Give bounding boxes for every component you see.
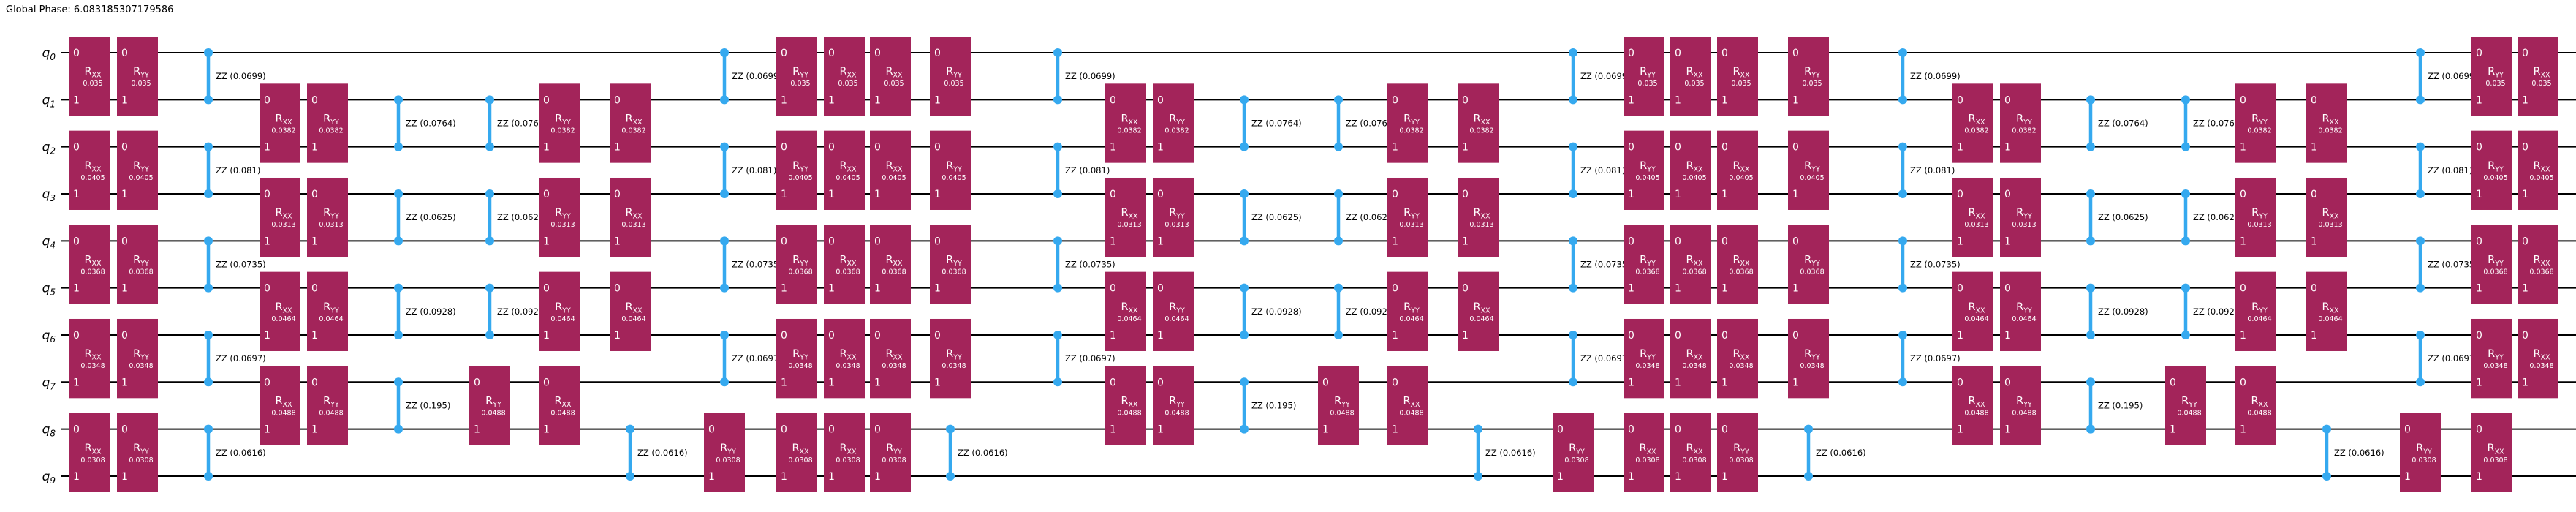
gate-input-1: 1: [781, 471, 787, 483]
gate-input-0: 0: [264, 377, 270, 388]
zz-gate-q6-q7: ZZ (0.0697): [204, 331, 266, 386]
zz-gate-q2-q3: ZZ (0.081): [1898, 143, 1955, 198]
gate-input-1: 1: [934, 189, 941, 200]
zz-gate-q3-q4: ZZ (0.0625): [2086, 189, 2148, 245]
gate-angle-label: 0.0368: [1682, 268, 1706, 276]
gate-input-1: 1: [73, 471, 80, 483]
gate-input-0: 0: [543, 377, 550, 388]
gate-angle-label: 0.0368: [80, 268, 105, 276]
ryy-gate-q8-q9: 01RYY0.0308: [870, 413, 911, 492]
zz-control-dot: [1569, 331, 1577, 339]
gate-angle-label: 0.035: [131, 80, 151, 88]
zz-target-dot: [1053, 95, 1062, 104]
zz-target-dot: [720, 95, 729, 104]
zz-target-dot: [1240, 425, 1249, 434]
zz-angle-label: ZZ (0.0697): [2428, 353, 2478, 364]
zz-control-dot: [1569, 143, 1577, 151]
gate-input-0: 0: [2311, 189, 2317, 200]
zz-angle-label: ZZ (0.0699): [2428, 71, 2478, 81]
gate-input-0: 0: [1792, 48, 1799, 59]
rxx-gate-q6-q7: 01RXX0.0348: [1717, 319, 1758, 398]
zz-gate-q3-q4: ZZ (0.0625): [394, 189, 456, 245]
gate-input-0: 0: [614, 189, 621, 200]
gate-input-0: 0: [543, 94, 550, 106]
rxx-gate-q7-q8: 01RXX0.0488: [539, 366, 580, 445]
gate-input-0: 0: [2522, 142, 2528, 154]
zz-angle-label: ZZ (0.0699): [1580, 71, 1631, 81]
gate-angle-label: 0.0382: [1469, 127, 1493, 135]
gate-input-1: 1: [1675, 377, 1681, 388]
qubit-label-q5: q5: [42, 282, 56, 298]
gate-input-0: 0: [1721, 48, 1728, 59]
gate-angle-label: 0.035: [884, 80, 904, 88]
gate-input-0: 0: [1392, 377, 1398, 388]
zz-target-dot: [1898, 284, 1907, 293]
zz-angle-label: ZZ (0.195): [406, 400, 450, 410]
gate-input-0: 0: [2476, 236, 2482, 247]
zz-gate-q8-q9: ZZ (0.0616): [2322, 425, 2384, 481]
gate-angle-label: 0.0348: [2483, 362, 2507, 370]
zz-control-dot: [204, 331, 213, 339]
zz-target-dot: [720, 377, 729, 386]
gate-input-0: 0: [934, 236, 941, 247]
ryy-gate-q6-q7: 01RYY0.0348: [2471, 319, 2512, 398]
zz-target-dot: [2181, 331, 2190, 339]
zz-angle-label: ZZ (0.0616): [216, 448, 266, 458]
gate-input-1: 1: [311, 330, 318, 342]
ryy-gate-q0-q1: 01RYY0.035: [1788, 37, 1829, 116]
gate-input-1: 1: [1392, 142, 1398, 154]
zz-gate-q5-q6: ZZ (0.0928): [394, 284, 456, 339]
rxx-gate-q3-q4: 01RXX0.0313: [610, 178, 651, 257]
zz-angle-label: ZZ (0.0764): [406, 118, 456, 128]
gate-input-0: 0: [2004, 189, 2011, 200]
zz-target-dot: [204, 284, 213, 293]
rxx-gate-q1-q2: 01RXX0.0382: [260, 83, 300, 162]
zz-gate-q8-q9: ZZ (0.0616): [946, 425, 1008, 481]
qubit-label-q1: q1: [42, 93, 56, 109]
gate-angle-label: 0.0308: [1564, 456, 1588, 464]
gate-input-0: 0: [2476, 142, 2482, 154]
gate-input-0: 0: [2522, 48, 2528, 59]
zz-angle-label: ZZ (0.081): [732, 165, 776, 176]
gate-input-1: 1: [543, 330, 550, 342]
gate-input-0: 0: [2240, 283, 2246, 295]
ryy-gate-q2-q3: 01RYY0.0405: [1624, 131, 1664, 210]
gate-angle-label: 0.0382: [621, 127, 645, 135]
gate-angle-label: 0.0382: [319, 127, 343, 135]
gate-angle-label: 0.0405: [942, 174, 966, 182]
gate-input-0: 0: [2311, 283, 2317, 295]
qubit-label-q6: q6: [42, 328, 56, 345]
gate-input-1: 1: [781, 377, 787, 388]
zz-gate-q6-q7: ZZ (0.0697): [1898, 331, 1961, 386]
gate-input-0: 0: [2170, 377, 2176, 388]
gate-input-1: 1: [264, 142, 270, 154]
gate-input-0: 0: [2240, 377, 2246, 388]
zz-target-dot: [1240, 331, 1249, 339]
gate-input-0: 0: [1628, 142, 1634, 154]
zz-gate-q0-q1: ZZ (0.0699): [1898, 48, 1961, 104]
gate-input-0: 0: [874, 424, 881, 436]
rxx-gate-q1-q2: 01RXX0.0382: [1458, 83, 1499, 162]
gate-angle-label: 0.0488: [2177, 409, 2201, 417]
gate-input-1: 1: [264, 424, 270, 436]
zz-angle-label: ZZ (0.081): [1065, 165, 1110, 176]
ryy-gate-q6-q7: 01RYY0.0348: [117, 319, 158, 398]
gate-angle-label: 0.0405: [882, 174, 906, 182]
rxx-gate-q0-q1: 01RXX0.035: [870, 37, 911, 116]
gate-angle-label: 0.0313: [1117, 221, 1141, 229]
gate-input-1: 1: [73, 283, 80, 295]
ryy-gate-q1-q2: 01RYY0.0382: [1153, 83, 1194, 162]
zz-target-dot: [946, 472, 955, 481]
rxx-gate-q5-q6: 01RXX0.0464: [610, 272, 651, 351]
gate-angle-label: 0.0405: [1682, 174, 1706, 182]
gate-input-1: 1: [73, 377, 80, 388]
gate-angle-label: 0.035: [838, 80, 857, 88]
gate-input-0: 0: [934, 330, 941, 342]
zz-target-dot: [485, 143, 494, 151]
zz-target-dot: [1240, 236, 1249, 245]
zz-angle-label: ZZ (0.0625): [1251, 212, 1302, 222]
rxx-gate-q2-q3: 01RXX0.0405: [69, 131, 110, 210]
zz-gate-q7-q8: ZZ (0.195): [2086, 377, 2143, 433]
gate-input-0: 0: [543, 189, 550, 200]
zz-control-dot: [720, 48, 729, 57]
qubit-label-q9: q9: [42, 470, 56, 486]
rxx-gate-q1-q2: 01RXX0.0382: [610, 83, 651, 162]
zz-angle-label: ZZ (0.195): [2098, 400, 2143, 410]
gate-input-1: 1: [2476, 94, 2482, 106]
zz-target-dot: [1053, 189, 1062, 198]
rxx-gate-q0-q1: 01RXX0.035: [69, 37, 110, 116]
gate-input-0: 0: [934, 48, 941, 59]
gate-input-0: 0: [121, 48, 128, 59]
rxx-gate-q5-q6: 01RXX0.0464: [2306, 272, 2347, 351]
ryy-gate-q0-q1: 01RYY0.035: [117, 37, 158, 116]
ryy-gate-q4-q5: 01RYY0.0368: [776, 225, 817, 304]
gate-input-0: 0: [1792, 142, 1799, 154]
gate-input-0: 0: [2004, 377, 2011, 388]
gate-input-1: 1: [874, 283, 881, 295]
zz-gate-q5-q6: ZZ (0.0928): [2181, 284, 2243, 339]
zz-control-dot: [2416, 331, 2425, 339]
zz-gate-q8-q9: ZZ (0.0616): [626, 425, 688, 481]
gate-angle-label: 0.0464: [2012, 315, 2036, 323]
zz-target-dot: [204, 377, 213, 386]
ryy-gate-q2-q3: 01RYY0.0405: [930, 131, 971, 210]
rxx-gate-q8-q9: 01RXX0.0308: [1670, 413, 1711, 492]
gate-input-0: 0: [781, 142, 787, 154]
gate-angle-label: 0.0368: [882, 268, 906, 276]
zz-control-dot: [1569, 236, 1577, 245]
gate-angle-label: 0.035: [83, 80, 102, 88]
quantum-circuit-canvas: q0q1q2q3q4q5q6q7q8q901RXX0.03501RYY0.035…: [0, 0, 2576, 512]
zz-gate-q0-q1: ZZ (0.0699): [720, 48, 782, 104]
gate-angle-label: 0.035: [944, 80, 963, 88]
gate-input-0: 0: [1721, 330, 1728, 342]
gate-input-0: 0: [1675, 142, 1681, 154]
gate-input-1: 1: [828, 471, 835, 483]
gate-angle-label: 0.0368: [2483, 268, 2507, 276]
zz-gate-q0-q1: ZZ (0.0699): [204, 48, 266, 104]
gate-input-0: 0: [828, 424, 835, 436]
gate-input-1: 1: [2311, 330, 2317, 342]
zz-gate-q4-q5: ZZ (0.0735): [204, 236, 266, 292]
gate-input-1: 1: [543, 142, 550, 154]
ryy-gate-q3-q4: 01RYY0.0313: [1387, 178, 1428, 257]
gate-input-1: 1: [1110, 142, 1116, 154]
gate-angle-label: 0.0382: [1164, 127, 1189, 135]
zz-control-dot: [204, 425, 213, 434]
gate-input-1: 1: [614, 142, 621, 154]
zz-gate-q1-q2: ZZ (0.0764): [1240, 95, 1302, 151]
zz-control-dot: [2086, 284, 2095, 293]
gate-input-0: 0: [781, 236, 787, 247]
ryy-gate-q1-q2: 01RYY0.0382: [2000, 83, 2041, 162]
gate-input-1: 1: [2522, 94, 2528, 106]
gate-angle-label: 0.0405: [1729, 174, 1753, 182]
gate-angle-label: 0.0308: [80, 456, 105, 464]
gate-input-0: 0: [874, 236, 881, 247]
zz-control-dot: [720, 236, 729, 245]
zz-target-dot: [204, 95, 213, 104]
qubit-label-q4: q4: [42, 234, 56, 250]
gate-angle-label: 0.0308: [836, 456, 860, 464]
zz-target-dot: [1474, 472, 1482, 481]
zz-control-dot: [1053, 48, 1062, 57]
gate-angle-label: 0.035: [1637, 80, 1657, 88]
gate-angle-label: 0.0313: [1164, 221, 1189, 229]
rxx-gate-q8-q9: 01RXX0.0308: [776, 413, 817, 492]
zz-angle-label: ZZ (0.0616): [637, 448, 688, 458]
rxx-gate-q4-q5: 01RXX0.0368: [1670, 225, 1711, 304]
gate-input-1: 1: [311, 142, 318, 154]
zz-gate-q1-q2: ZZ (0.0764): [2181, 95, 2243, 151]
zz-control-dot: [485, 95, 494, 104]
gate-input-1: 1: [828, 283, 835, 295]
zz-target-dot: [2322, 472, 2331, 481]
zz-gate-q1-q2: ZZ (0.0764): [394, 95, 456, 151]
gate-input-1: 1: [1157, 142, 1164, 154]
gate-angle-label: 0.0368: [942, 268, 966, 276]
zz-control-dot: [1898, 236, 1907, 245]
gate-input-1: 1: [474, 424, 480, 436]
gate-angle-label: 0.0382: [1399, 127, 1423, 135]
gate-input-1: 1: [1675, 283, 1681, 295]
gate-input-1: 1: [2170, 424, 2176, 436]
rxx-gate-q8-q9: 01RXX0.0308: [2471, 413, 2512, 492]
gate-input-1: 1: [874, 377, 881, 388]
ryy-gate-q6-q7: 01RYY0.0348: [776, 319, 817, 398]
zz-angle-label: ZZ (0.0697): [1910, 353, 1961, 364]
ryy-gate-q6-q7: 01RYY0.0348: [1788, 319, 1829, 398]
gate-input-1: 1: [1110, 330, 1116, 342]
zz-gate-q6-q7: ZZ (0.0697): [1569, 331, 1631, 386]
rxx-gate-q0-q1: 01RXX0.035: [1717, 37, 1758, 116]
gate-angle-label: 0.035: [790, 80, 810, 88]
rxx-gate-q5-q6: 01RXX0.0464: [1105, 272, 1146, 351]
gate-input-0: 0: [1792, 330, 1799, 342]
zz-control-dot: [720, 143, 729, 151]
zz-angle-label: ZZ (0.0697): [1065, 353, 1115, 364]
zz-gate-q0-q1: ZZ (0.0699): [2416, 48, 2478, 104]
gate-input-1: 1: [781, 94, 787, 106]
ryy-gate-q4-q5: 01RYY0.0368: [1624, 225, 1664, 304]
gate-input-1: 1: [828, 94, 835, 106]
gate-input-1: 1: [1392, 236, 1398, 247]
gate-input-0: 0: [2522, 330, 2528, 342]
gate-input-1: 1: [1628, 471, 1634, 483]
gate-input-0: 0: [1322, 377, 1329, 388]
gate-angle-label: 0.0488: [271, 409, 295, 417]
gate-angle-label: 0.0308: [1635, 456, 1659, 464]
rxx-gate-q7-q8: 01RXX0.0488: [2235, 366, 2276, 445]
gate-angle-label: 0.035: [2531, 80, 2551, 88]
zz-gate-q7-q8: ZZ (0.195): [1240, 377, 1296, 433]
gate-input-0: 0: [614, 94, 621, 106]
ryy-gate-q5-q6: 01RYY0.0464: [2235, 272, 2276, 351]
gate-input-1: 1: [2240, 236, 2246, 247]
gate-input-0: 0: [874, 48, 881, 59]
zz-target-dot: [1334, 331, 1343, 339]
gate-input-1: 1: [1957, 236, 1963, 247]
rxx-gate-q0-q1: 01RXX0.035: [1670, 37, 1711, 116]
gate-input-0: 0: [1392, 94, 1398, 106]
gate-angle-label: 0.0308: [1729, 456, 1753, 464]
gate-input-1: 1: [2522, 189, 2528, 200]
gate-angle-label: 0.0313: [1964, 221, 1988, 229]
gate-angle-label: 0.0488: [1164, 409, 1189, 417]
gate-input-1: 1: [2240, 142, 2246, 154]
zz-angle-label: ZZ (0.0697): [732, 353, 782, 364]
gate-input-1: 1: [1957, 424, 1963, 436]
gate-input-0: 0: [2240, 189, 2246, 200]
rxx-gate-q6-q7: 01RXX0.0348: [870, 319, 911, 398]
gate-angle-label: 0.0464: [550, 315, 575, 323]
zz-gate-q8-q9: ZZ (0.0616): [1804, 425, 1866, 481]
gate-input-0: 0: [1675, 424, 1681, 436]
gate-input-0: 0: [1392, 189, 1398, 200]
zz-gate-q4-q5: ZZ (0.0735): [1898, 236, 1961, 292]
gate-angle-label: 0.0313: [2247, 221, 2271, 229]
gate-angle-label: 0.0368: [1635, 268, 1659, 276]
gate-angle-label: 0.0405: [836, 174, 860, 182]
gate-input-0: 0: [874, 330, 881, 342]
gate-angle-label: 0.0313: [1469, 221, 1493, 229]
gate-input-0: 0: [1110, 283, 1116, 295]
zz-control-dot: [1053, 236, 1062, 245]
qubit-label-q0: q0: [42, 46, 56, 62]
zz-target-dot: [2086, 236, 2095, 245]
zz-angle-label: ZZ (0.0735): [1910, 259, 1961, 269]
gate-input-1: 1: [2476, 283, 2482, 295]
zz-target-dot: [204, 189, 213, 198]
gate-input-0: 0: [1721, 142, 1728, 154]
gate-angle-label: 0.0464: [621, 315, 645, 323]
gate-input-0: 0: [2522, 236, 2528, 247]
gate-angle-label: 0.0348: [1729, 362, 1753, 370]
gate-input-1: 1: [1792, 377, 1799, 388]
ryy-gate-q3-q4: 01RYY0.0313: [1153, 178, 1194, 257]
gate-input-1: 1: [2004, 330, 2011, 342]
zz-target-dot: [394, 236, 403, 245]
ryy-gate-q7-q8: 01RYY0.0488: [469, 366, 510, 445]
gate-input-0: 0: [1110, 94, 1116, 106]
ryy-gate-q4-q5: 01RYY0.0368: [1788, 225, 1829, 304]
zz-angle-label: ZZ (0.0625): [406, 212, 456, 222]
gate-angle-label: 0.0348: [80, 362, 105, 370]
zz-target-dot: [394, 425, 403, 434]
gate-input-1: 1: [2476, 377, 2482, 388]
zz-target-dot: [394, 331, 403, 339]
gate-angle-label: 0.0308: [1682, 456, 1706, 464]
gate-input-1: 1: [2311, 236, 2317, 247]
zz-target-dot: [1569, 189, 1577, 198]
gate-input-0: 0: [543, 283, 550, 295]
rxx-gate-q8-q9: 01RXX0.0308: [824, 413, 865, 492]
zz-gate-q1-q2: ZZ (0.0764): [2086, 95, 2148, 151]
gate-input-0: 0: [121, 424, 128, 436]
gate-angle-label: 0.0348: [942, 362, 966, 370]
rxx-gate-q5-q6: 01RXX0.0464: [260, 272, 300, 351]
gate-input-0: 0: [1110, 377, 1116, 388]
gate-input-1: 1: [2522, 283, 2528, 295]
ryy-gate-q7-q8: 01RYY0.0488: [1153, 366, 1194, 445]
gate-input-1: 1: [2004, 142, 2011, 154]
gate-input-1: 1: [874, 189, 881, 200]
gate-angle-label: 0.0308: [129, 456, 153, 464]
zz-gate-q0-q1: ZZ (0.0699): [1569, 48, 1631, 104]
gate-angle-label: 0.0308: [2412, 456, 2436, 464]
gate-input-0: 0: [311, 189, 318, 200]
gate-input-1: 1: [121, 189, 128, 200]
gate-input-1: 1: [543, 424, 550, 436]
gate-input-1: 1: [264, 330, 270, 342]
gate-input-0: 0: [1157, 94, 1164, 106]
zz-target-dot: [2181, 236, 2190, 245]
zz-target-dot: [1240, 143, 1249, 151]
gate-input-1: 1: [1557, 471, 1564, 483]
zz-angle-label: ZZ (0.0699): [1910, 71, 1961, 81]
gate-input-1: 1: [2522, 377, 2528, 388]
gate-input-0: 0: [1462, 189, 1469, 200]
gate-input-1: 1: [874, 471, 881, 483]
zz-gate-q1-q2: ZZ (0.0764): [485, 95, 548, 151]
gate-input-0: 0: [828, 48, 835, 59]
gate-input-0: 0: [1957, 377, 1963, 388]
gate-input-0: 0: [828, 236, 835, 247]
zz-angle-label: ZZ (0.0928): [2098, 306, 2148, 317]
gate-input-0: 0: [1957, 189, 1963, 200]
rxx-gate-q7-q8: 01RXX0.0488: [1387, 366, 1428, 445]
zz-target-dot: [2181, 143, 2190, 151]
ryy-gate-q7-q8: 01RYY0.0488: [2000, 366, 2041, 445]
rxx-gate-q3-q4: 01RXX0.0313: [1458, 178, 1499, 257]
gate-input-1: 1: [828, 377, 835, 388]
gate-input-0: 0: [264, 189, 270, 200]
rxx-gate-q6-q7: 01RXX0.0348: [824, 319, 865, 398]
gate-angle-label: 0.0382: [1964, 127, 1988, 135]
zz-control-dot: [1569, 48, 1577, 57]
gate-input-1: 1: [1957, 330, 1963, 342]
zz-control-dot: [1240, 95, 1249, 104]
zz-control-dot: [204, 236, 213, 245]
gate-input-1: 1: [934, 377, 941, 388]
ryy-gate-q7-q8: 01RYY0.0488: [1318, 366, 1359, 445]
zz-control-dot: [720, 331, 729, 339]
